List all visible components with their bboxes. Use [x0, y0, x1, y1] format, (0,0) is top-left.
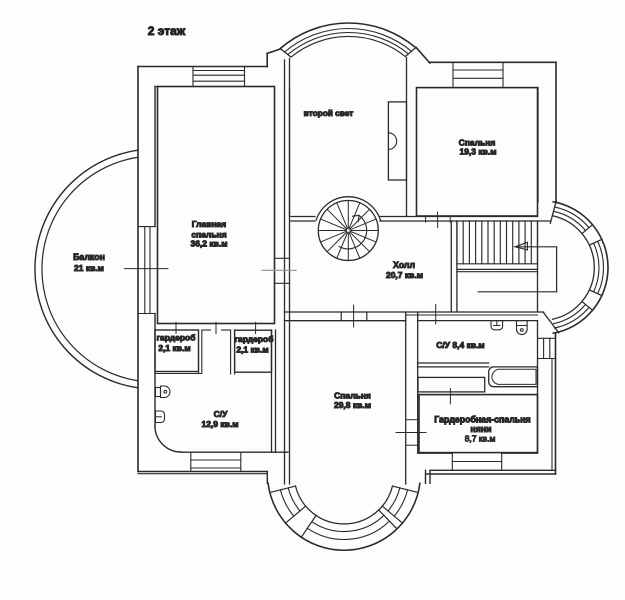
svg-text:Гардеробная-спальня: Гардеробная-спальня — [434, 415, 530, 425]
svg-text:19,3 кв.м: 19,3 кв.м — [459, 146, 496, 156]
svg-text:гардероб: гардероб — [234, 334, 273, 344]
svg-text:20,7 кв.м: 20,7 кв.м — [386, 270, 423, 280]
svg-text:Балкон: Балкон — [73, 252, 105, 262]
svg-text:36,2 кв.м: 36,2 кв.м — [190, 239, 227, 249]
svg-text:2 этаж: 2 этаж — [148, 24, 186, 38]
svg-text:2,1 кв.м: 2,1 кв.м — [158, 343, 190, 353]
svg-text:29,8 кв.м: 29,8 кв.м — [334, 400, 371, 410]
svg-text:С/У: С/У — [214, 409, 229, 419]
svg-text:няни: няни — [470, 424, 491, 434]
svg-text:8,7 кв.м: 8,7 кв.м — [465, 434, 496, 444]
svg-text:12,9 кв.м: 12,9 кв.м — [201, 419, 238, 429]
svg-text:Спальня: Спальня — [334, 391, 371, 401]
svg-text:гардероб: гардероб — [156, 333, 195, 343]
svg-text:С/У 8,4 кв.м: С/У 8,4 кв.м — [436, 340, 484, 350]
svg-text:Холл: Холл — [393, 260, 415, 270]
svg-text:21 кв.м: 21 кв.м — [74, 263, 104, 273]
svg-text:2,1 кв.м: 2,1 кв.м — [236, 345, 268, 355]
svg-text:второй свет: второй свет — [304, 108, 354, 118]
svg-text:Главная: Главная — [192, 219, 227, 229]
